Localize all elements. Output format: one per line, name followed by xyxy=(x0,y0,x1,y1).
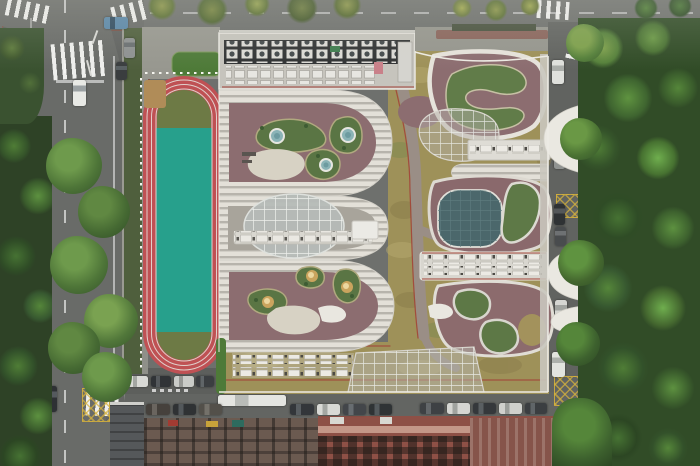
vehicle-car-east-3 xyxy=(554,204,565,225)
vehicle-car-south-4 xyxy=(290,404,314,415)
vehicle-car-south-2 xyxy=(173,404,196,415)
hvac-unit-row xyxy=(226,66,376,84)
sedum-roof-south xyxy=(219,342,549,394)
courtyard-sw-planting xyxy=(248,267,360,335)
building-grey-tower xyxy=(110,402,144,466)
oval-skylight xyxy=(244,194,344,258)
vehicle-car-south-5 xyxy=(317,404,340,415)
planted-ribbon xyxy=(446,65,526,131)
roof-box-white xyxy=(330,417,344,424)
courtyard-nw-planting xyxy=(242,117,362,180)
bench xyxy=(242,160,252,163)
teal-skylight xyxy=(270,128,355,171)
vehicle-car-white-west xyxy=(73,80,86,106)
vehicle-car-south-3 xyxy=(199,404,222,415)
vehicle-car-east-4 xyxy=(555,227,566,246)
ne-sidewalk xyxy=(415,27,548,51)
ne-glass-canopy xyxy=(419,109,499,161)
vehicle-car-south-7 xyxy=(369,404,392,415)
mechanical-rooftop xyxy=(219,33,415,89)
vehicle-car-east-5 xyxy=(555,300,567,323)
vehicle-car-park-north-4 xyxy=(196,376,214,387)
roof-box-teal xyxy=(232,420,244,427)
trees-left-column xyxy=(0,116,52,466)
mid-wing-deck xyxy=(228,206,376,250)
infield-grass xyxy=(157,90,211,360)
terrace-band-mid xyxy=(219,196,388,260)
vehicle-car-south-1 xyxy=(146,404,170,415)
terrace-ring-nw xyxy=(219,90,392,196)
track-north-pavement xyxy=(142,27,220,79)
vehicle-car-south-6 xyxy=(343,404,366,415)
courtyard-centre-east xyxy=(429,176,551,254)
crosswalk-main-west xyxy=(51,40,110,81)
sidewalk-strip xyxy=(142,27,148,374)
trees-bottom-gap xyxy=(552,398,612,466)
cream-deck xyxy=(267,306,320,335)
vehicle-car-dark-north xyxy=(116,62,127,80)
trees-top-left xyxy=(0,28,44,124)
vehicle-car-south-11 xyxy=(499,403,522,414)
trees-northeast-hedge xyxy=(448,0,544,28)
roof-box-white xyxy=(380,417,392,424)
terrace-band-east xyxy=(451,164,548,181)
courtyard-ne xyxy=(398,51,546,138)
terraced-wings-west xyxy=(219,90,394,352)
courtyard-sw xyxy=(229,272,378,340)
south-unit-row xyxy=(233,355,353,364)
trees-top-right-corner xyxy=(630,0,700,24)
green-entry-roof xyxy=(172,52,222,76)
east-roof-band xyxy=(420,252,548,280)
corner-canopy xyxy=(428,304,453,319)
equipment-pink xyxy=(374,62,383,74)
equipment-green xyxy=(330,46,340,52)
running-track xyxy=(143,76,225,374)
spine-roof-units xyxy=(234,231,372,244)
vehicle-truck-blue-north xyxy=(104,17,128,29)
sports-field-teal xyxy=(157,128,212,332)
vehicle-car-south-10 xyxy=(473,403,496,414)
sedum-roof-east xyxy=(388,48,548,394)
vehicle-bus-white-south xyxy=(218,395,286,406)
east-edge-walk xyxy=(540,54,548,392)
vehicle-car-park-north-3 xyxy=(174,376,194,387)
give-way-dashes xyxy=(152,389,192,392)
cream-deck xyxy=(248,149,305,180)
brick-building xyxy=(470,418,558,466)
parapet-lines xyxy=(219,31,548,392)
vehicle-car-park-north-2 xyxy=(151,376,171,387)
gym-glass-roof xyxy=(438,190,502,247)
roof-box-yellow xyxy=(206,421,218,427)
sedum-texture xyxy=(236,67,552,380)
vehicle-car-south-8 xyxy=(420,403,444,414)
aerial-photo-scene: Top-down drone photograph: a red running… xyxy=(0,0,700,466)
bench xyxy=(242,152,256,156)
courtyard-se xyxy=(434,281,552,356)
corner-canopy xyxy=(318,306,346,323)
south-unit-row xyxy=(233,367,353,376)
vehicle-car-south-12 xyxy=(525,403,547,414)
courtyard-nw xyxy=(229,103,376,182)
trees-top-middle xyxy=(142,0,378,34)
ne-maroon-path xyxy=(436,30,548,39)
vehicle-car-east-1 xyxy=(552,60,564,84)
roof-box-red xyxy=(168,420,178,426)
south-glass-skylight xyxy=(348,347,484,392)
white-plant-room xyxy=(352,221,378,239)
sedum-patch xyxy=(518,314,546,346)
forest-right xyxy=(578,18,700,466)
hvac-fan-row xyxy=(226,41,396,63)
ne-unit-strip xyxy=(468,140,550,160)
kidney-planter xyxy=(502,183,540,243)
amber-dome-skylight xyxy=(262,270,353,308)
terrace-ring-sw xyxy=(219,260,394,352)
vehicle-car-grey-north xyxy=(124,38,135,58)
vehicle-car-south-9 xyxy=(447,403,470,414)
roof-paths xyxy=(224,86,546,380)
track-fence xyxy=(141,73,222,372)
